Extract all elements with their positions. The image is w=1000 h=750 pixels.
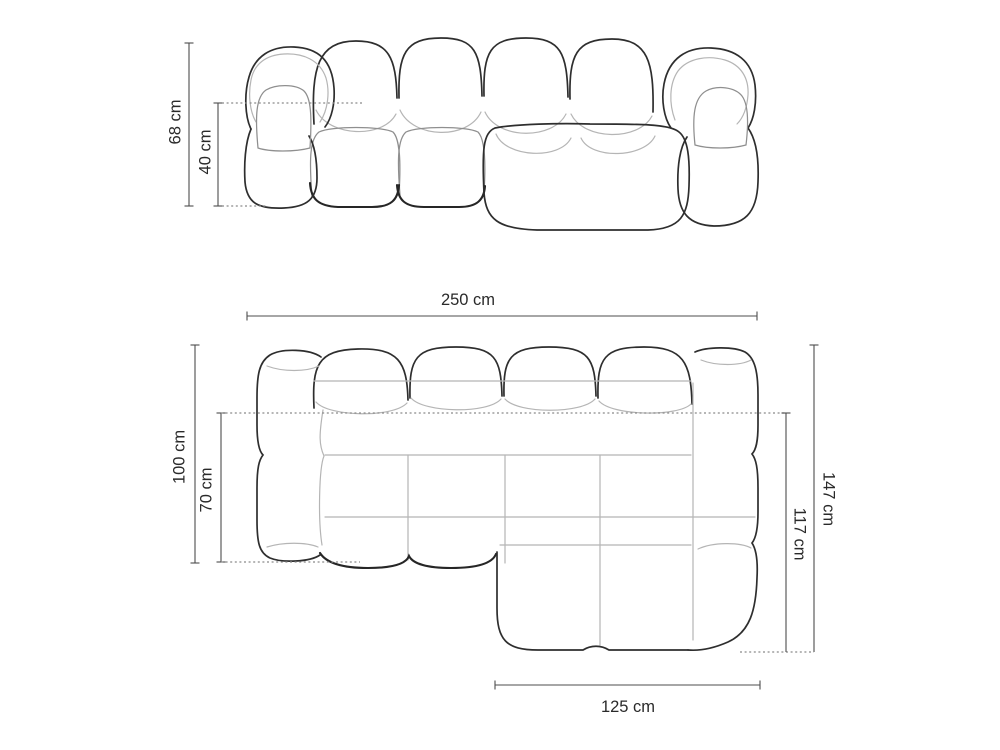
top-seat-seams [325,383,755,645]
dim-top-chaise-inner-depth: 117 cm [782,413,809,652]
dim-top-total-depth: 100 cm [170,345,199,563]
dim-front-total-height: 68 cm [166,43,193,206]
diagram-canvas: 68 cm 40 cm [0,0,1000,750]
dim-label-front-seat-height: 40 cm [196,130,214,175]
front-view: 68 cm 40 cm [166,38,758,230]
front-seat-cushions [310,128,485,208]
dim-label-top-chaise-inner-depth: 117 cm [791,508,809,561]
dim-label-front-total-height: 68 cm [166,100,184,145]
front-right-armrest [663,48,758,226]
dim-label-top-seat-depth: 70 cm [197,468,215,513]
dim-label-top-total-width: 250 cm [441,291,495,309]
dim-top-seat-depth: 70 cm [197,413,225,562]
dim-label-top-total-depth: 100 cm [170,430,188,484]
dim-top-total-width: 250 cm [247,291,757,321]
dim-top-chaise-total-depth: 147 cm [810,345,838,652]
front-chaise-seat [483,124,689,230]
dim-top-chaise-width: 125 cm [495,681,760,717]
front-back-pillows [313,38,653,135]
dim-label-top-chaise-total-depth: 147 cm [820,472,838,526]
top-back-cushions [314,347,692,414]
dim-front-seat-height: 40 cm [196,103,362,206]
top-chaise-outline [497,552,688,650]
sofa-dimension-diagram: 68 cm 40 cm [0,0,1000,750]
dim-label-top-chaise-width: 125 cm [601,698,655,716]
top-view: 250 cm 100 cm 70 cm 117 cm [170,291,837,716]
front-left-armrest [245,47,335,208]
top-right-armrest [688,348,758,650]
